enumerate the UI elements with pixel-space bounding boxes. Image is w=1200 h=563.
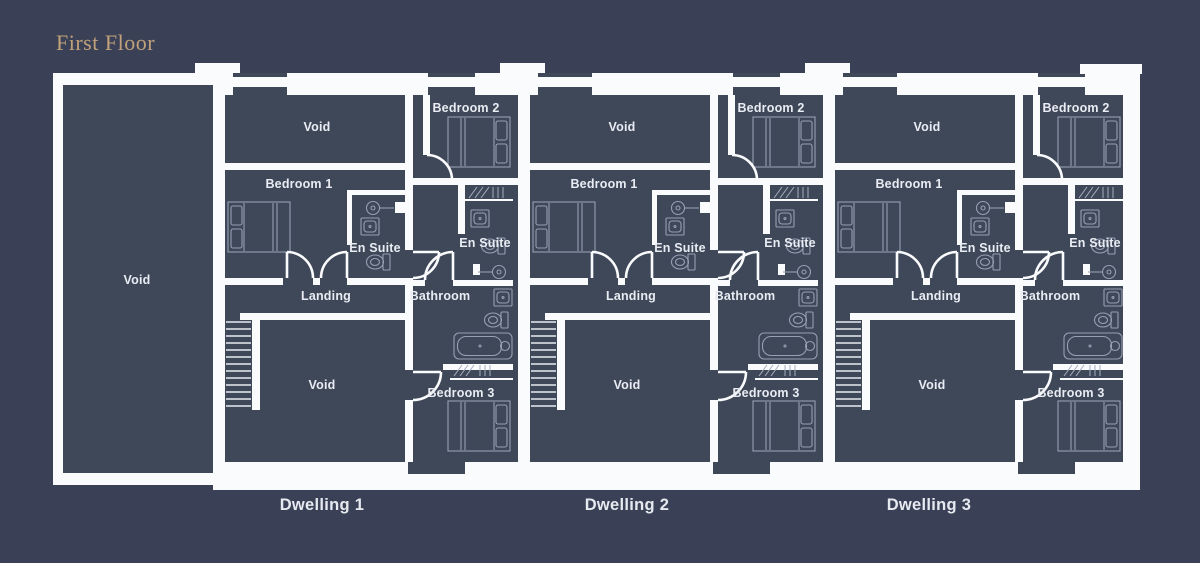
dwelling-2-caption: Dwelling 2 (585, 496, 670, 514)
first-floor-plan: Void Bedroom 1 En Suite Bedroom 2 En Sui… (0, 0, 1200, 563)
dwelling-1-caption: Dwelling 1 (280, 496, 365, 514)
dwelling-3-caption: Dwelling 3 (887, 496, 972, 514)
room-label-void-left: Void (124, 273, 151, 287)
